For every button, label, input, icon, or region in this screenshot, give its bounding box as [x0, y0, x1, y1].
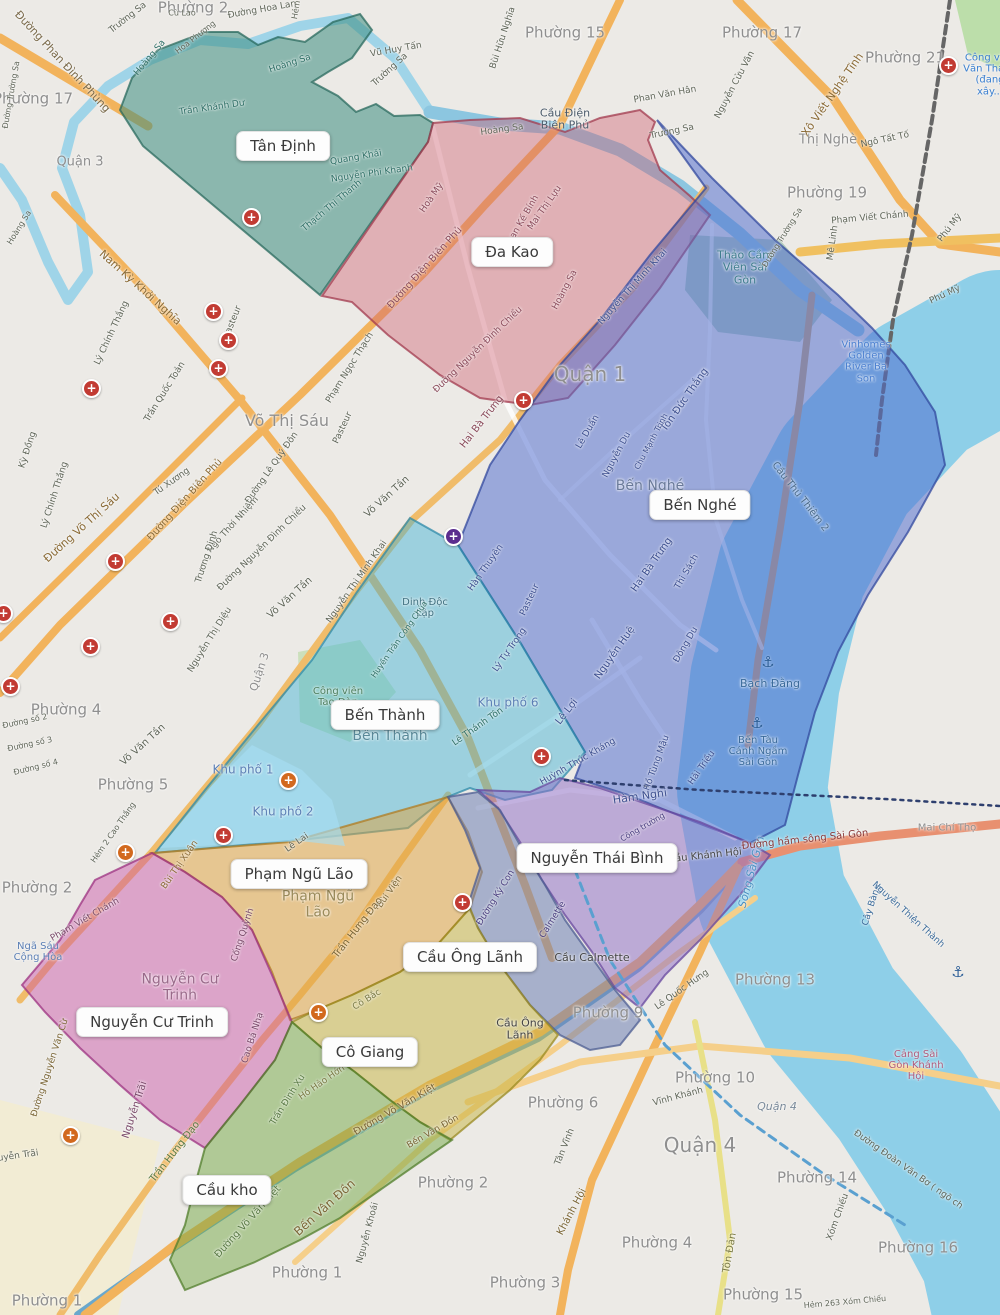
hospital-cross-icon[interactable]: + — [161, 612, 180, 631]
ward-label-ben-thanh[interactable]: Bến Thành — [331, 700, 440, 730]
map-geometry — [0, 0, 1000, 1315]
hospital-cross-icon[interactable]: + — [106, 552, 125, 571]
hospital-cross-icon[interactable]: + — [453, 893, 472, 912]
hospital-cross-icon[interactable]: + — [514, 391, 533, 410]
ward-label-cau-ong-lanh[interactable]: Cầu Ông Lãnh — [403, 942, 537, 972]
ward-label-da-kao[interactable]: Đa Kao — [471, 237, 553, 267]
hospital-cross-icon[interactable]: + — [82, 379, 101, 398]
hospital-cross-icon[interactable]: + — [204, 302, 223, 321]
ward-label-pham-ngu-lao[interactable]: Phạm Ngũ Lão — [231, 859, 368, 889]
hospital-cross-icon[interactable]: + — [279, 771, 298, 790]
hospital-cross-icon[interactable]: + — [209, 359, 228, 378]
hospital-cross-icon[interactable]: + — [939, 56, 958, 75]
hospital-cross-icon[interactable]: + — [116, 843, 135, 862]
ward-label-nguyen-cu-trinh[interactable]: Nguyễn Cư Trinh — [76, 1007, 228, 1037]
ward-label-co-giang[interactable]: Cô Giang — [322, 1037, 418, 1067]
hospital-cross-icon[interactable]: + — [444, 527, 463, 546]
hospital-cross-icon[interactable]: + — [61, 1126, 80, 1145]
hospital-cross-icon[interactable]: + — [214, 826, 233, 845]
ward-label-cau-kho[interactable]: Cầu kho — [182, 1175, 271, 1205]
hospital-cross-icon[interactable]: + — [219, 331, 238, 350]
hospital-cross-icon[interactable]: + — [242, 208, 261, 227]
hospital-cross-icon[interactable]: + — [309, 1003, 328, 1022]
map-canvas[interactable]: Phường 2Phường 17Quận 3Phường 15Phường 1… — [0, 0, 1000, 1315]
hospital-cross-icon[interactable]: + — [1, 677, 20, 696]
hospital-cross-icon[interactable]: + — [532, 747, 551, 766]
hospital-cross-icon[interactable]: + — [81, 637, 100, 656]
ward-label-tan-dinh[interactable]: Tân Định — [236, 131, 330, 161]
ward-label-nguyen-thai-binh[interactable]: Nguyễn Thái Bình — [517, 843, 678, 873]
ward-label-ben-nghe[interactable]: Bến Nghé — [649, 490, 750, 520]
